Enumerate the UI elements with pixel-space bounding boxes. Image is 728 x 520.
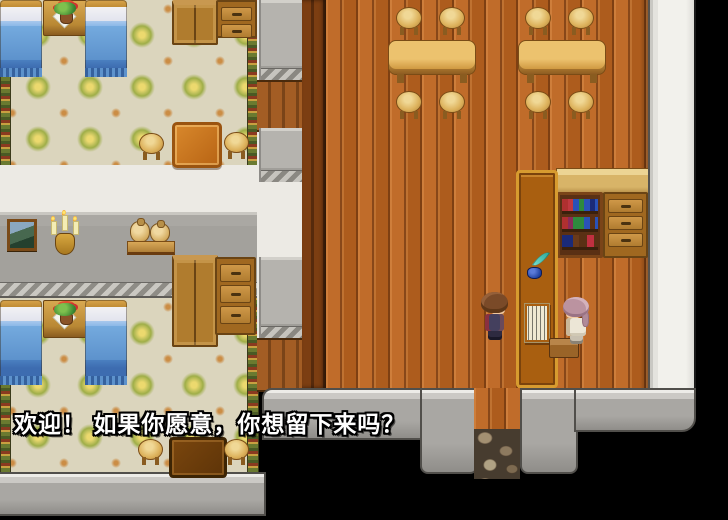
flour-sack [130,221,150,243]
candle [73,221,79,235]
wall-pillar [259,128,307,182]
drawer [608,233,643,247]
candle-flame [62,210,66,215]
drawer [221,24,252,38]
wall-painting [7,219,37,251]
drawer [220,285,251,303]
candle-sconce [49,211,79,255]
drawer-cabinet [603,192,648,258]
innkeeper-character[interactable] [562,297,591,347]
stool [224,132,249,159]
corridor-floor[interactable] [257,338,307,392]
tall-dresser [215,257,256,335]
potted-plant [54,303,76,316]
wall-pillar [259,0,307,80]
candle-flame [73,216,77,221]
shelf-board [127,241,175,255]
candle-flame [51,216,55,221]
dresser [216,0,257,38]
player-hair [481,292,508,313]
bookshelf [557,192,603,258]
stool [568,7,594,35]
player-body [485,314,504,331]
drawer [608,199,643,213]
candle [51,221,57,235]
nightstand [43,0,87,36]
drawer [608,216,643,230]
bottom-wall-left [0,472,266,516]
books [562,217,598,232]
books [562,199,598,214]
drawer [221,7,252,21]
carpet-trim [0,77,11,165]
stool [525,91,551,119]
stool [224,439,249,465]
stool [439,7,465,35]
bed [85,300,127,385]
game-viewport[interactable]: 欢迎！ 如果你愿意，你想留下来吗？ [0,0,728,520]
sack-shelf [127,217,173,253]
wardrobe [172,255,218,347]
wall-pillar [259,257,307,338]
sconce-base [55,233,75,255]
ink-bottle [527,267,542,279]
stool [525,7,551,35]
stool [138,439,163,465]
drawer [220,264,251,282]
bed [0,300,42,385]
dining-table [518,40,606,75]
stool [396,91,422,119]
drawer [220,306,251,324]
candle [62,215,68,231]
cabinet [172,0,218,45]
player-legs [488,331,502,340]
dining-table [388,40,476,75]
guest-ledger[interactable] [524,303,550,343]
stool [139,133,164,160]
stool [439,91,465,119]
low-table [172,122,222,168]
flour-sack [150,223,170,243]
nightstand [43,300,87,338]
tavern-side-wall [302,0,326,388]
potted-plant [54,2,76,15]
dialog-text[interactable]: 欢迎！ 如果你愿意，你想留下来吗？ [14,405,714,439]
books [562,235,598,250]
stool [568,91,594,119]
innkeeper-legs [570,336,583,344]
outer-wall-right [648,0,696,400]
player-character[interactable] [481,292,508,342]
bed [85,0,127,77]
corridor-floor[interactable] [257,80,307,132]
bed [0,0,42,77]
dark-table [169,437,227,478]
stool [396,7,422,35]
innkeeper-hair [563,297,589,317]
